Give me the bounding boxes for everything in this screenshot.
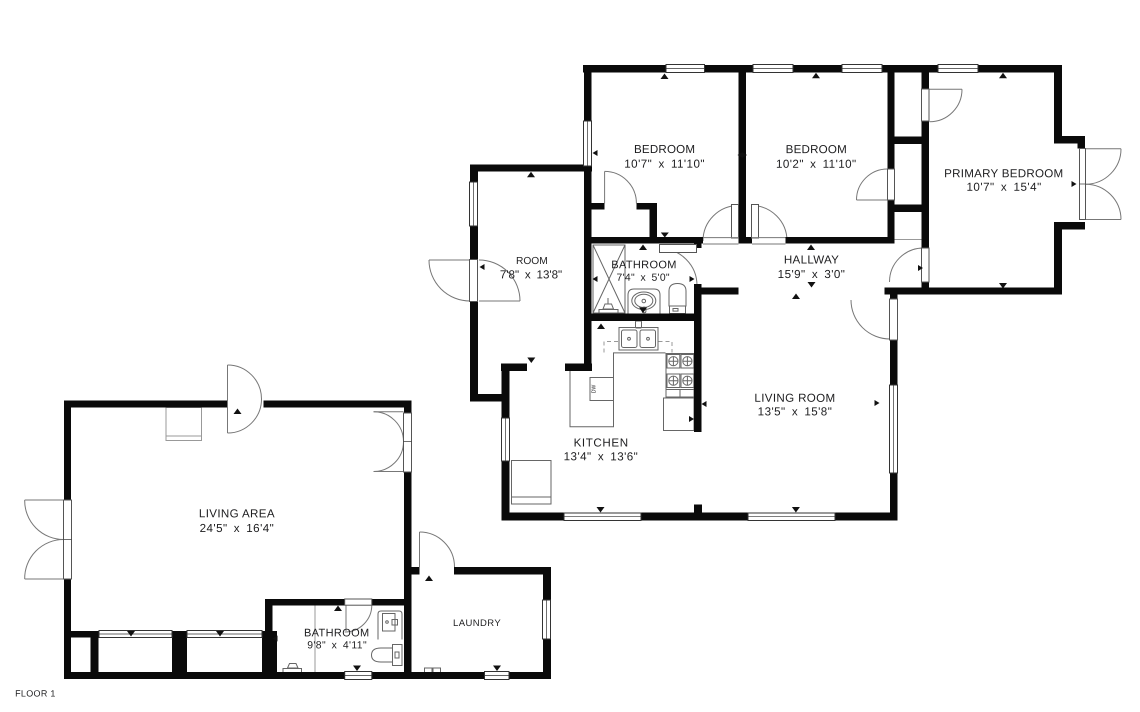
svg-text:BEDROOM: BEDROOM <box>634 143 695 156</box>
svg-text:ROOM: ROOM <box>516 256 548 267</box>
svg-text:KITCHEN: KITCHEN <box>574 437 629 450</box>
svg-text:PRIMARY BEDROOM: PRIMARY BEDROOM <box>944 167 1063 180</box>
svg-text:HALLWAY: HALLWAY <box>784 254 839 267</box>
svg-text:9'8" x 4'11": 9'8" x 4'11" <box>307 640 367 651</box>
svg-text:10'7" x 15'4": 10'7" x 15'4" <box>966 181 1041 194</box>
svg-text:13'4" x 13'6": 13'4" x 13'6" <box>564 450 639 463</box>
svg-text:LIVING ROOM: LIVING ROOM <box>754 392 835 405</box>
svg-text:FLOOR 1: FLOOR 1 <box>15 689 56 699</box>
svg-text:15'9" x 3'0": 15'9" x 3'0" <box>778 268 846 281</box>
svg-text:BEDROOM: BEDROOM <box>786 143 847 156</box>
svg-text:LIVING AREA: LIVING AREA <box>199 507 275 520</box>
svg-text:10'7" x 11'10": 10'7" x 11'10" <box>624 158 705 171</box>
svg-text:10'2" x 11'10": 10'2" x 11'10" <box>776 158 857 171</box>
svg-text:24'5" x 16'4": 24'5" x 16'4" <box>200 522 275 535</box>
svg-text:LAUNDRY: LAUNDRY <box>453 618 501 629</box>
svg-text:BATHROOM: BATHROOM <box>611 259 677 271</box>
svg-text:DW: DW <box>592 385 598 394</box>
svg-text:BATHROOM: BATHROOM <box>304 627 370 639</box>
svg-text:7'8" x 13'8": 7'8" x 13'8" <box>500 268 562 281</box>
svg-text:7'4" x 5'0": 7'4" x 5'0" <box>617 273 670 284</box>
svg-text:13'5" x 15'8": 13'5" x 15'8" <box>758 405 833 418</box>
